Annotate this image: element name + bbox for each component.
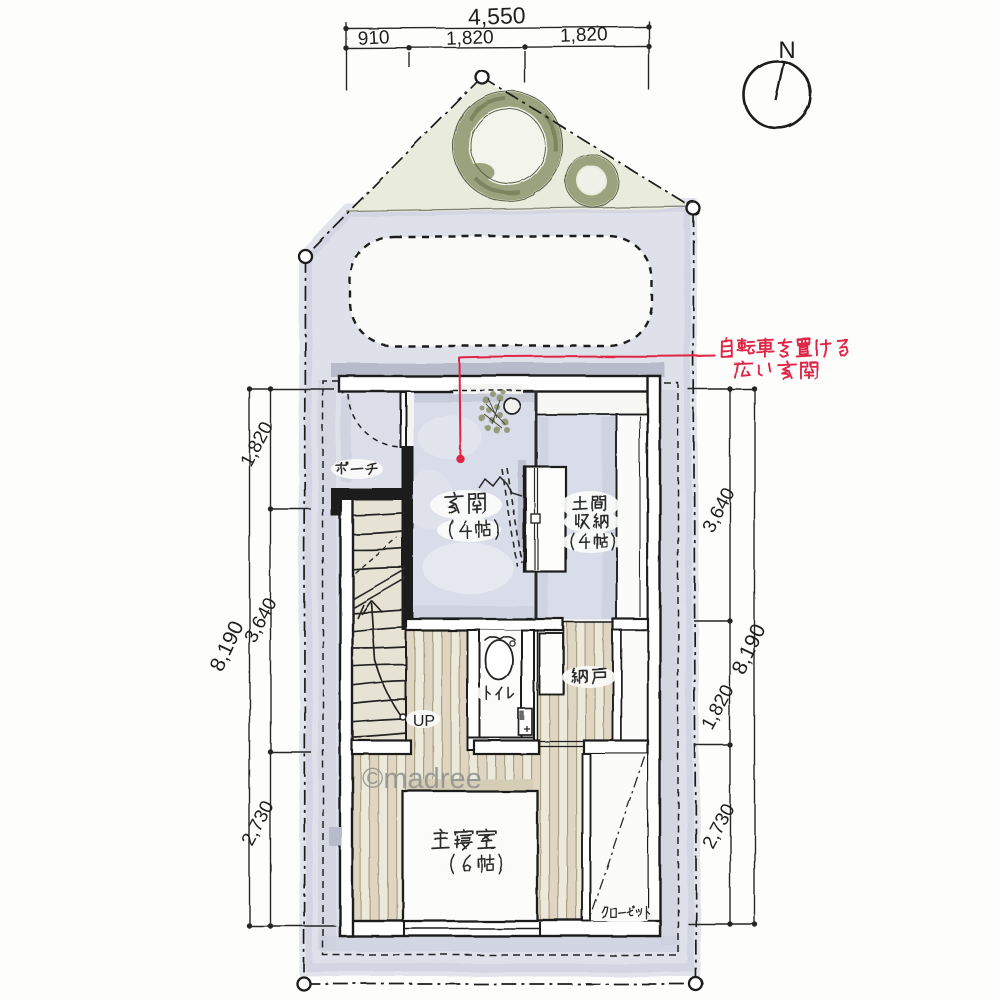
svg-text:N: N [778, 37, 795, 64]
svg-text:1,820: 1,820 [446, 27, 494, 50]
svg-text:4,550: 4,550 [468, 2, 526, 30]
svg-text:1,820: 1,820 [560, 24, 608, 47]
svg-text:UP: UP [413, 713, 435, 730]
svg-text:©madree: ©madree [362, 763, 482, 795]
svg-text:910: 910 [357, 27, 390, 50]
